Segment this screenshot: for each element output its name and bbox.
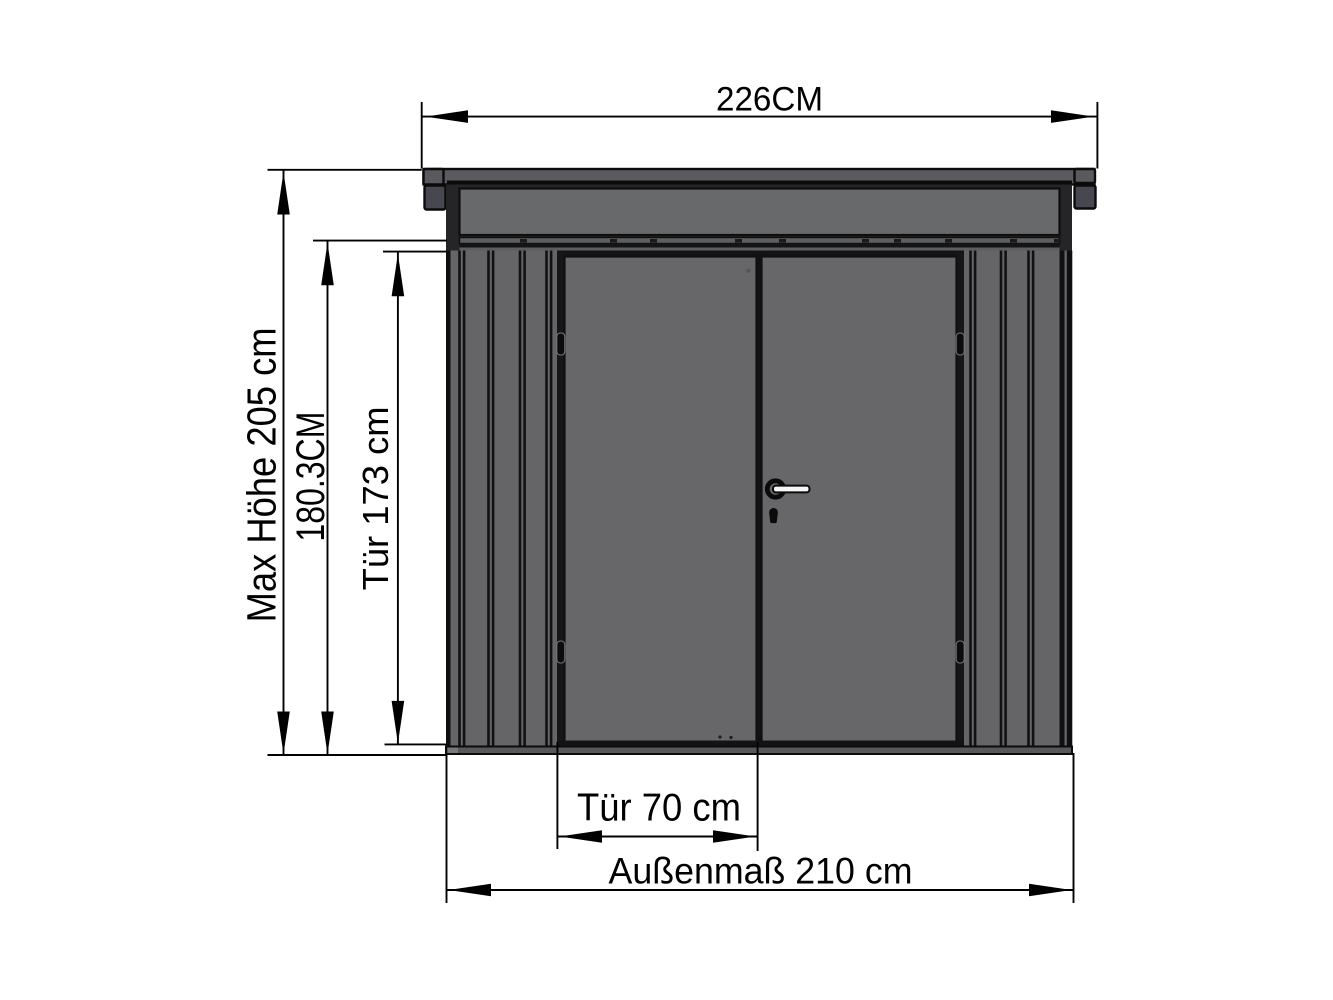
svg-text:180.3CM: 180.3CM <box>289 412 333 542</box>
svg-text:Außenmaß 210 cm: Außenmaß 210 cm <box>609 850 913 891</box>
svg-text:Tür 70 cm: Tür 70 cm <box>577 786 741 829</box>
svg-text:226CM: 226CM <box>716 81 823 119</box>
svg-text:Tür 173 cm: Tür 173 cm <box>355 406 396 590</box>
svg-text:Max Höhe 205 cm: Max Höhe 205 cm <box>238 327 284 622</box>
